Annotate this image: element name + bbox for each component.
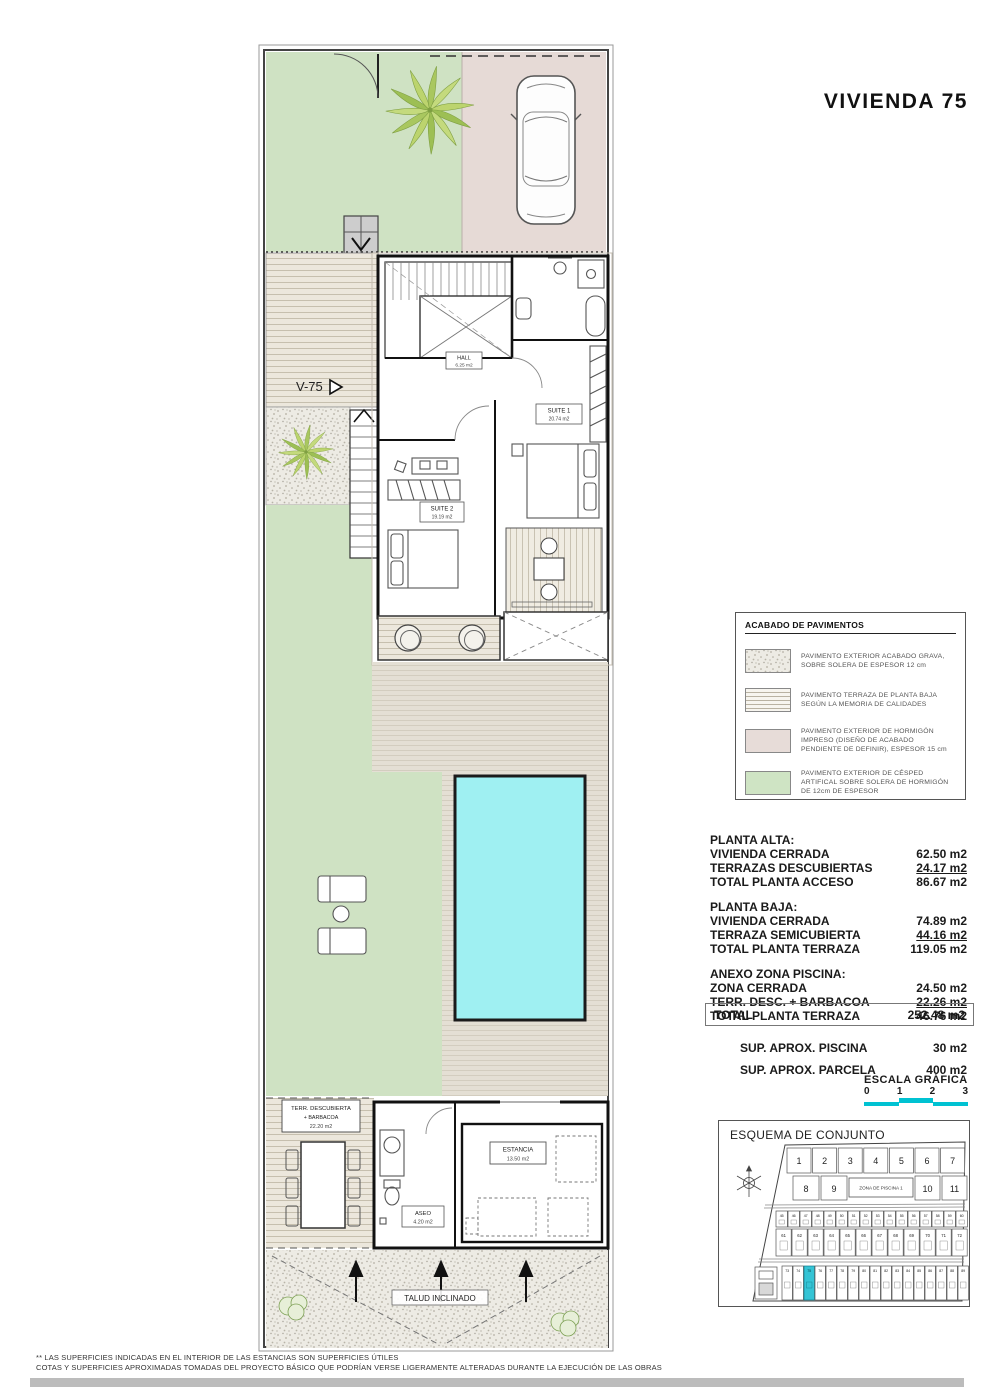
car [511, 76, 581, 224]
pavements-legend: ACABADO DE PAVIMENTOS PAVIMENTO EXTERIOR… [735, 612, 966, 800]
esquema-plot: 61 [776, 1229, 791, 1256]
graphic-scale: ESCALA GRÁFICA 0 1 2 3 [864, 1074, 974, 1107]
svg-text:9: 9 [831, 1184, 836, 1194]
svg-text:60: 60 [960, 1214, 964, 1218]
esquema-plot: 5 [889, 1148, 913, 1173]
esquema-plot: 64 [824, 1229, 839, 1256]
svg-text:75: 75 [807, 1269, 811, 1273]
skylight [504, 612, 608, 660]
area-row-value: 62.50 m2 [916, 847, 967, 861]
esquema-plot: 52 [860, 1211, 871, 1227]
balcony [378, 616, 500, 660]
svg-text:86: 86 [928, 1269, 932, 1273]
esquema-plot: 8 [793, 1176, 819, 1200]
area-row: TERRAZAS DESCUBIERTAS24.17 m2 [710, 861, 967, 875]
area-row-value: 119.05 m2 [910, 942, 967, 956]
svg-text:11: 11 [950, 1184, 959, 1194]
scale-bar [864, 1098, 968, 1107]
svg-text:7: 7 [950, 1156, 955, 1166]
svg-text:ESTANCIA: ESTANCIA [503, 1147, 534, 1154]
svg-text:46: 46 [792, 1214, 796, 1218]
esquema-plot: 53 [872, 1211, 883, 1227]
esquema-title: ESQUEMA DE CONJUNTO [730, 1128, 885, 1142]
svg-text:81: 81 [873, 1269, 877, 1273]
aseo-label: ASEO 4.20 m2 [402, 1206, 444, 1227]
esquema-plot: 70 [920, 1229, 935, 1256]
svg-text:3: 3 [848, 1156, 853, 1166]
legend-item-text: PAVIMENTO EXTERIOR DE CÉSPED ARTIFICAL S… [801, 769, 956, 796]
area-group-heading: ANEXO ZONA PISCINA: [710, 967, 967, 981]
svg-text:76: 76 [818, 1269, 822, 1273]
svg-text:49: 49 [828, 1214, 832, 1218]
area-row-label: VIVIENDA CERRADA [710, 847, 916, 861]
svg-text:66: 66 [861, 1233, 866, 1238]
legend-item-text: PAVIMENTO TERRAZA DE PLANTA BAJA SEGÚN L… [801, 691, 956, 709]
estancia-label: ESTANCIA 13.50 m2 [490, 1142, 546, 1164]
area-group: PLANTA ALTA:VIVIENDA CERRADA62.50 m2TERR… [710, 833, 967, 889]
footer-notes: ** LAS SUPERFICIES INDICADAS EN EL INTER… [36, 1353, 662, 1373]
slope-area: TALUD INCLINADO [266, 1250, 608, 1348]
scale-segment [899, 1098, 934, 1103]
esquema-plot: 56 [908, 1211, 919, 1227]
covered-terrace [506, 528, 602, 614]
svg-text:TERR. DESCUBIERTA: TERR. DESCUBIERTA [291, 1106, 351, 1112]
esquema-plot: 54 [884, 1211, 895, 1227]
svg-text:4.20 m2: 4.20 m2 [413, 1220, 432, 1226]
esquema-plot: 73 [782, 1266, 792, 1300]
esquema-plot: 47 [800, 1211, 811, 1227]
esquema-plot: 71 [936, 1229, 951, 1256]
svg-text:72: 72 [957, 1233, 962, 1238]
esquema-plot: 76 [815, 1266, 825, 1300]
svg-text:4: 4 [873, 1156, 878, 1166]
esquema-plot: 67 [872, 1229, 887, 1256]
annex-terrace-label: TERR. DESCUBIERTA + BARBACOA 22.20 m2 [282, 1100, 360, 1132]
svg-text:59: 59 [948, 1214, 952, 1218]
svg-text:47: 47 [804, 1214, 808, 1218]
esquema-plot: 45 [776, 1211, 787, 1227]
legend-title: ACABADO DE PAVIMENTOS [745, 620, 956, 634]
legend-item: PAVIMENTO EXTERIOR DE CÉSPED ARTIFICAL S… [745, 769, 956, 796]
svg-text:67: 67 [877, 1233, 882, 1238]
esquema-plot: 48 [812, 1211, 823, 1227]
area-row: TERRAZA SEMICUBIERTA44.16 m2 [710, 928, 967, 942]
esquema-plot: 10 [915, 1176, 940, 1200]
floor-plan: V-75 [253, 40, 621, 1358]
svg-text:2: 2 [822, 1156, 827, 1166]
svg-text:62: 62 [797, 1233, 802, 1238]
svg-text:22.20 m2: 22.20 m2 [310, 1124, 332, 1130]
exterior-stairs [350, 410, 378, 558]
scale-tick: 0 [864, 1086, 870, 1097]
esquema-plot: 60 [956, 1211, 967, 1227]
area-row-label: TERRAZAS DESCUBIERTAS [710, 861, 916, 875]
esquema-plot: 58 [932, 1211, 943, 1227]
svg-text:70: 70 [925, 1233, 930, 1238]
svg-text:13.50 m2: 13.50 m2 [507, 1157, 529, 1163]
esquema-plot: 7 [941, 1148, 965, 1173]
esquema-plot: 78 [837, 1266, 847, 1300]
esquema-plot: 57 [920, 1211, 931, 1227]
area-row: TOTAL PLANTA ACCESO86.67 m2 [710, 875, 967, 889]
esquema-plot: 4 [864, 1148, 888, 1173]
esquema-plot: 2 [813, 1148, 837, 1173]
legend-item-text: PAVIMENTO EXTERIOR ACABADO GRAVA, SOBRE … [801, 652, 956, 670]
svg-text:73: 73 [785, 1269, 789, 1273]
legend-swatch-pink [745, 729, 791, 753]
esquema-plot: 55 [896, 1211, 907, 1227]
esquema-plot: 81 [870, 1266, 880, 1300]
area-row-value: 74.89 m2 [916, 914, 967, 928]
footer-line2: COTAS Y SUPERFICIES APROXIMADAS TOMADAS … [36, 1363, 662, 1373]
svg-text:54: 54 [888, 1214, 892, 1218]
svg-text:74: 74 [796, 1269, 800, 1273]
annex-deck: TERR. DESCUBIERTA + BARBACOA 22.20 m2 [266, 1098, 374, 1248]
svg-text:1: 1 [796, 1156, 801, 1166]
pool-zone-box: ZONA DE PISCINA 1 [849, 1178, 913, 1197]
svg-text:ZONA DE PISCINA 1: ZONA DE PISCINA 1 [859, 1186, 903, 1191]
svg-text:84: 84 [906, 1269, 910, 1273]
area-row-label: TOTAL PLANTA ACCESO [710, 875, 916, 889]
esquema-plot: 74 [793, 1266, 803, 1300]
esquema-plot: 87 [936, 1266, 946, 1300]
svg-text:SUITE 1: SUITE 1 [548, 409, 571, 415]
svg-text:53: 53 [876, 1214, 880, 1218]
svg-text:78: 78 [840, 1269, 844, 1273]
scale-tick: 3 [962, 1086, 968, 1097]
esquema-plot: 63 [808, 1229, 823, 1256]
svg-text:55: 55 [900, 1214, 904, 1218]
area-row-value: 24.50 m2 [916, 981, 967, 995]
esquema-plot: 83 [892, 1266, 902, 1300]
esquema-plot: 50 [836, 1211, 847, 1227]
svg-text:88: 88 [950, 1269, 954, 1273]
footer-divider [30, 1378, 964, 1387]
esquema-plot: 59 [944, 1211, 955, 1227]
svg-text:19.19 m2: 19.19 m2 [432, 515, 453, 521]
svg-text:68: 68 [893, 1233, 898, 1238]
svg-text:65: 65 [845, 1233, 850, 1238]
upper-terrace: V-75 [266, 253, 378, 407]
esquema-plots: 1234567891011454647484950515253545556575… [776, 1148, 968, 1300]
esquema-plot: 77 [826, 1266, 836, 1300]
scale-ticks: 0 1 2 3 [864, 1086, 968, 1097]
footer-line1: ** LAS SUPERFICIES INDICADAS EN EL INTER… [36, 1353, 662, 1363]
compass-icon [737, 1166, 761, 1197]
utility-box [344, 216, 378, 254]
esquema-plot: 65 [840, 1229, 855, 1256]
scale-segment [864, 1102, 899, 1107]
area-group: PLANTA BAJA:VIVIENDA CERRADA74.89 m2TERR… [710, 900, 967, 956]
esquema-plot: 88 [947, 1266, 957, 1300]
area-group-heading: PLANTA BAJA: [710, 900, 967, 914]
esquema-plot: 79 [848, 1266, 858, 1300]
area-row-value: 44.16 m2 [916, 928, 967, 942]
esquema-plot: 51 [848, 1211, 859, 1227]
legend-items: PAVIMENTO EXTERIOR ACABADO GRAVA, SOBRE … [745, 649, 956, 796]
esquema-plot: 68 [888, 1229, 903, 1256]
legend-item-text: PAVIMENTO EXTERIOR DE HORMIGÓN IMPRESO (… [801, 727, 956, 754]
svg-text:64: 64 [829, 1233, 834, 1238]
svg-text:6: 6 [924, 1156, 929, 1166]
extra-row: SUP. APROX. PISCINA 30 m2 [710, 1037, 967, 1059]
svg-text:45: 45 [780, 1214, 784, 1218]
esquema-plot: 46 [788, 1211, 799, 1227]
area-row: VIVIENDA CERRADA62.50 m2 [710, 847, 967, 861]
svg-text:69: 69 [909, 1233, 914, 1238]
legend-swatch-stripes [745, 688, 791, 712]
svg-text:5: 5 [899, 1156, 904, 1166]
esquema-plot: 69 [904, 1229, 919, 1256]
site-entrance-block [755, 1267, 777, 1299]
esquema-plot: 85 [914, 1266, 924, 1300]
svg-text:77: 77 [829, 1269, 833, 1273]
svg-text:+ BARBACOA: + BARBACOA [304, 1115, 339, 1121]
svg-text:61: 61 [781, 1233, 786, 1238]
svg-text:57: 57 [924, 1214, 928, 1218]
extra-value: 30 m2 [933, 1037, 967, 1059]
site-scheme: ZONA DE PISCINA 1 1234567891011454647484… [718, 1120, 970, 1307]
total-row: TOTAL 252.48 m2 [705, 1003, 974, 1026]
scale-title: ESCALA GRÁFICA [864, 1074, 974, 1086]
esquema-plot: 6 [915, 1148, 939, 1173]
svg-text:6.25 m2: 6.25 m2 [455, 363, 473, 369]
ground-terrace [372, 662, 608, 772]
legend-item: PAVIMENTO EXTERIOR DE HORMIGÓN IMPRESO (… [745, 727, 956, 754]
slope-label: TALUD INCLINADO [404, 1294, 475, 1303]
stairwell [385, 262, 512, 358]
svg-text:87: 87 [939, 1269, 943, 1273]
hall-label: HALL 6.25 m2 [446, 352, 482, 369]
svg-text:80: 80 [862, 1269, 866, 1273]
svg-text:50: 50 [840, 1214, 844, 1218]
esquema-plot: 86 [925, 1266, 935, 1300]
esquema-svg: ZONA DE PISCINA 1 1234567891011454647484… [719, 1121, 969, 1306]
svg-text:HALL: HALL [457, 356, 471, 362]
svg-text:8: 8 [803, 1184, 808, 1194]
area-row: TOTAL PLANTA TERRAZA119.05 m2 [710, 942, 967, 956]
esquema-plot: 3 [838, 1148, 862, 1173]
esquema-plot: 84 [903, 1266, 913, 1300]
page-title: VIVIENDA 75 [735, 90, 968, 114]
svg-text:85: 85 [917, 1269, 921, 1273]
scale-tick: 2 [930, 1086, 936, 1097]
legend-item: PAVIMENTO TERRAZA DE PLANTA BAJA SEGÚN L… [745, 688, 956, 712]
esquema-plot: 66 [856, 1229, 871, 1256]
svg-text:51: 51 [852, 1214, 856, 1218]
pool [455, 776, 585, 1020]
esquema-plot: 9 [821, 1176, 847, 1200]
area-row: ZONA CERRADA24.50 m2 [710, 981, 967, 995]
svg-text:71: 71 [941, 1233, 946, 1238]
legend-swatch-gravel [745, 649, 791, 673]
esquema-plot-highlight: 75 [804, 1266, 814, 1300]
svg-text:83: 83 [895, 1269, 899, 1273]
area-row-label: TOTAL PLANTA TERRAZA [710, 942, 910, 956]
svg-text:82: 82 [884, 1269, 888, 1273]
area-row-label: VIVIENDA CERRADA [710, 914, 916, 928]
svg-text:56: 56 [912, 1214, 916, 1218]
annex-building: ASEO 4.20 m2 ESTANCIA 13.50 m2 [374, 1102, 608, 1248]
house: HALL 6.25 m2 SUITE 1 20.74 m2 [378, 256, 608, 618]
svg-text:20.74 m2: 20.74 m2 [549, 417, 570, 423]
esquema-plot: 80 [859, 1266, 869, 1300]
area-group-heading: PLANTA ALTA: [710, 833, 967, 847]
legend-swatch-green [745, 771, 791, 795]
svg-text:SUITE 2: SUITE 2 [431, 507, 454, 513]
svg-text:89: 89 [961, 1269, 965, 1273]
esquema-plot: 1 [787, 1148, 811, 1173]
extra-label: SUP. APROX. PISCINA [710, 1037, 933, 1059]
esquema-plot: 72 [952, 1229, 967, 1256]
svg-text:79: 79 [851, 1269, 855, 1273]
area-row-label: TERRAZA SEMICUBIERTA [710, 928, 916, 942]
legend-item: PAVIMENTO EXTERIOR ACABADO GRAVA, SOBRE … [745, 649, 956, 673]
scale-segment [933, 1102, 968, 1107]
area-row-value: 86.67 m2 [916, 875, 967, 889]
svg-text:ASEO: ASEO [415, 1211, 432, 1217]
svg-text:52: 52 [864, 1214, 868, 1218]
area-row-value: 24.17 m2 [916, 861, 967, 875]
svg-text:58: 58 [936, 1214, 940, 1218]
area-row-label: ZONA CERRADA [710, 981, 916, 995]
scale-tick: 1 [897, 1086, 903, 1097]
esquema-plot: 89 [958, 1266, 968, 1300]
total-value: 252.48 m2 [908, 1008, 965, 1022]
area-row: VIVIENDA CERRADA74.89 m2 [710, 914, 967, 928]
esquema-plot: 82 [881, 1266, 891, 1300]
esquema-plot: 62 [792, 1229, 807, 1256]
svg-text:10: 10 [922, 1184, 932, 1194]
svg-text:63: 63 [813, 1233, 818, 1238]
total-label: TOTAL [714, 1008, 753, 1022]
unit-label: V-75 [296, 379, 323, 394]
esquema-plot: 11 [942, 1176, 967, 1200]
svg-text:48: 48 [816, 1214, 820, 1218]
esquema-plot: 49 [824, 1211, 835, 1227]
